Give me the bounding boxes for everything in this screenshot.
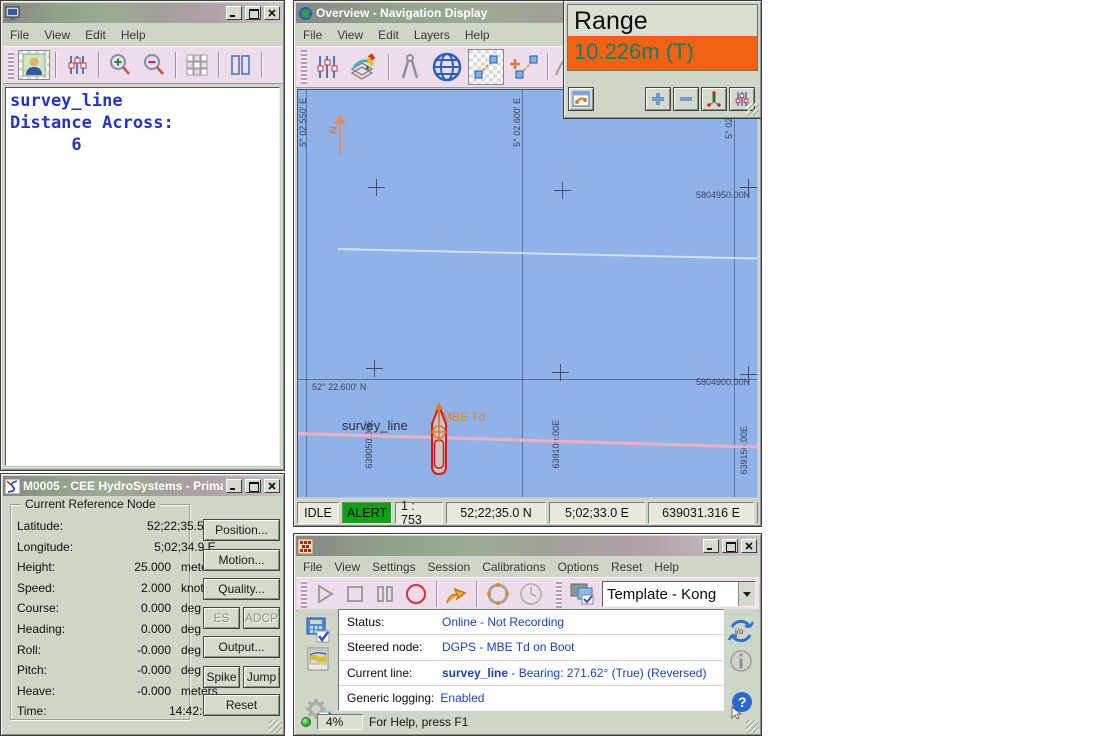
menu-options[interactable]: Options	[558, 560, 599, 574]
jump-button[interactable]: Jump	[243, 666, 280, 688]
text-display-menubar: File View Edit Help	[1, 25, 284, 46]
echogram-view-button[interactable]	[302, 647, 334, 673]
northing-indicator: 5804866.7	[757, 502, 758, 524]
resize-grip[interactable]	[746, 103, 759, 116]
navigation-statusbar: IDLE ALERT 1 : 753 52;22;35.0 N 5;02;33.…	[297, 500, 758, 526]
readout-line-3: 6	[10, 135, 82, 155]
north-label: N	[328, 126, 340, 134]
help-hint-text: For Help, press F1	[369, 715, 468, 729]
northing-label: 5804900.00N	[696, 377, 750, 387]
close-button[interactable]	[264, 6, 280, 20]
readout-line-2: Distance Across:	[10, 113, 174, 133]
row-label: Heading:	[17, 622, 105, 636]
node-measure-button[interactable]	[701, 87, 727, 111]
row-label: Roll:	[17, 643, 105, 657]
maximize-button[interactable]	[245, 479, 261, 493]
text-display-toolbar	[3, 46, 282, 84]
row-label: Height:	[17, 560, 105, 574]
latitude-label: 52° 22.600' N	[312, 382, 366, 392]
resize-grip[interactable]	[746, 720, 759, 733]
row-value: 0.000	[105, 601, 171, 615]
current-line-bearing: - Bearing: 271.62° (True) (Reversed)	[508, 666, 706, 680]
controller-statusbar: 4% For Help, press F1	[297, 712, 758, 732]
toolbar-separator	[175, 52, 176, 78]
toolbar-separator	[436, 581, 437, 607]
position-button[interactable]: Position...	[203, 519, 280, 541]
row-value: Online - Not Recording	[442, 615, 564, 629]
grid-cross	[554, 182, 571, 199]
status-row: Status: Online - Not Recording	[339, 610, 723, 635]
monitor-icon	[5, 6, 20, 20]
row-value: 25.000	[105, 560, 171, 574]
row-label: Pitch:	[17, 663, 105, 677]
grid-cross	[368, 179, 385, 196]
compass-tool-button[interactable]	[394, 52, 426, 82]
north-arrow-icon: N	[328, 108, 352, 158]
close-button[interactable]	[264, 479, 280, 493]
row-label: Latitude:	[17, 519, 105, 533]
easting-indicator: 639031.316 E	[648, 502, 754, 524]
toolbar-separator	[218, 52, 219, 78]
toolbar-separator	[547, 54, 548, 80]
controller-app-icon	[298, 539, 313, 554]
menu-view[interactable]: View	[337, 28, 363, 42]
row-label: Course:	[17, 601, 105, 615]
row-label: Steered node:	[347, 640, 442, 654]
range-window: Range 10.226m (T)	[563, 0, 762, 119]
row-label: Heave:	[17, 684, 105, 698]
mode-indicator: IDLE	[297, 502, 339, 524]
row-label: Status:	[347, 615, 442, 629]
menu-view[interactable]: View	[44, 28, 70, 42]
vessel-icon	[422, 402, 456, 482]
line-add-button[interactable]	[506, 52, 542, 82]
adcp-button[interactable]: ADCP	[243, 607, 280, 629]
scale-indicator: 1 : 753	[395, 502, 443, 524]
link-window-button[interactable]	[568, 87, 594, 111]
longitude-label: 5° 02.600' E	[512, 98, 522, 147]
readout-line-1: survey_line	[10, 91, 123, 111]
distance-readout: survey_line Distance Across: 6	[5, 87, 280, 466]
row-label: Generic logging:	[347, 691, 434, 705]
globe-title-icon	[298, 6, 313, 21]
globe-projection-button[interactable]	[428, 52, 466, 82]
maximize-button[interactable]	[722, 539, 738, 553]
zoom-out-button[interactable]	[138, 50, 170, 80]
northing-label: 5804950.00N	[696, 190, 750, 200]
helm-button[interactable]	[482, 579, 514, 609]
maximize-button[interactable]	[245, 6, 261, 20]
avatar-button[interactable]	[18, 50, 50, 80]
menu-session[interactable]: Session	[428, 560, 471, 574]
controller-status-list: Status: Online - Not Recording Steered n…	[338, 609, 724, 711]
text-display-titlebar[interactable]	[3, 3, 282, 23]
motion-button[interactable]: Motion...	[203, 549, 280, 571]
reference-data-grid: Latitude:52;22;35.5 N Longitude:5;02;34.…	[17, 519, 185, 718]
menu-reset[interactable]: Reset	[611, 560, 642, 574]
play-button[interactable]	[311, 579, 339, 609]
pause-button[interactable]	[371, 579, 399, 609]
hydrosystems-icon	[5, 479, 20, 494]
line-select-button[interactable]	[468, 49, 504, 85]
row-value: DGPS - MBE Td on Boot	[442, 640, 575, 654]
row-value: Enabled	[440, 691, 484, 705]
row-value: -0.000	[105, 684, 171, 698]
longitude-gridline	[734, 90, 735, 497]
row-value: 2.000	[105, 581, 171, 595]
menu-view[interactable]: View	[334, 560, 360, 574]
controller-toolbar: Template - Kong	[296, 577, 759, 611]
svg-text:i/o: i/o	[735, 627, 744, 636]
row-value: 52;22;35.5 N	[105, 519, 218, 533]
menu-layers[interactable]: Layers	[414, 28, 450, 42]
menu-file[interactable]: File	[10, 28, 29, 42]
template-combobox-value: Template - Kong	[603, 586, 738, 603]
menu-calibrations[interactable]: Calibrations	[482, 560, 545, 574]
replay-button[interactable]	[441, 579, 471, 609]
row-value: 5;02;34.9 E	[105, 540, 218, 554]
alert-indicator: ALERT	[342, 502, 392, 524]
resize-grip[interactable]	[269, 720, 282, 733]
info-button[interactable]	[726, 649, 756, 673]
chevron-down-icon[interactable]	[738, 582, 755, 606]
latitude-indicator: 52;22;35.0 N	[446, 502, 546, 524]
close-button[interactable]	[741, 539, 757, 553]
minimize-button[interactable]	[226, 6, 242, 20]
window-title: M0005 - CEE HydroSystems - Prima...	[23, 479, 223, 493]
reset-button[interactable]: Reset	[203, 694, 280, 716]
menu-file[interactable]: File	[303, 28, 322, 42]
stop-button[interactable]	[341, 579, 369, 609]
menu-settings[interactable]: Settings	[372, 560, 415, 574]
chart-line	[338, 248, 758, 260]
output-button[interactable]: Output...	[203, 636, 280, 658]
zoom-in-button[interactable]	[104, 50, 136, 80]
latitude-gridline	[298, 379, 757, 380]
record-button[interactable]	[401, 579, 431, 609]
zoom-in-range-button[interactable]	[645, 87, 671, 111]
toolbar-grip[interactable]	[301, 580, 307, 608]
steered-node-row: Steered node: DGPS - MBE Td on Boot	[339, 635, 723, 660]
display-settings-button[interactable]	[311, 52, 343, 82]
controller-titlebar[interactable]	[296, 536, 759, 556]
row-label: Time:	[17, 704, 105, 718]
longitude-gridline	[522, 90, 523, 497]
sliders-button[interactable]	[61, 50, 93, 80]
io-refresh-button[interactable]: i/o	[726, 617, 756, 645]
quality-button[interactable]: Quality...	[203, 578, 280, 600]
current-line-row: Current line: survey_line - Bearing: 271…	[339, 661, 723, 686]
status-led	[301, 717, 311, 727]
controller-left-panel	[297, 609, 338, 711]
clock-button[interactable]	[516, 579, 546, 609]
minimize-button[interactable]	[226, 479, 242, 493]
toolbar-separator	[55, 52, 56, 78]
controller-menubar: File View Settings Session Calibrations …	[294, 558, 761, 577]
template-combobox[interactable]: Template - Kong	[602, 581, 756, 607]
toolbar-grip[interactable]	[556, 580, 562, 608]
edit-layers-button[interactable]	[345, 52, 383, 82]
map-canvas[interactable]: 5° 02.550' E 5° 02.600' E 5° 02.650' E 5…	[297, 89, 758, 498]
m0005-titlebar[interactable]: M0005 - CEE HydroSystems - Prima...	[3, 476, 282, 496]
grid-cross	[366, 360, 383, 377]
generic-logging-row: Generic logging: Enabled	[339, 686, 723, 710]
zoom-out-range-button[interactable]	[673, 87, 699, 111]
row-value: -0.000	[105, 643, 171, 657]
minimize-button[interactable]	[703, 539, 719, 553]
range-button-row	[568, 86, 755, 112]
row-label: Current line:	[347, 666, 442, 680]
longitude-gridline	[306, 90, 307, 497]
progress-indicator: 4%	[317, 714, 363, 730]
north-arrow-stem	[339, 116, 341, 154]
row-label: Speed:	[17, 581, 105, 595]
current-reference-node-group: Current Reference Node Latitude:52;22;35…	[10, 504, 190, 720]
row-value: survey_line - Bearing: 271.62° (True) (R…	[442, 666, 706, 680]
row-value: -0.000	[105, 663, 171, 677]
range-title: Range	[567, 4, 758, 36]
controller-content: Status: Online - Not Recording Steered n…	[297, 609, 758, 711]
m0005-window: M0005 - CEE HydroSystems - Prima... Curr…	[0, 473, 285, 736]
menu-file[interactable]: File	[303, 560, 322, 574]
menu-help[interactable]: Help	[654, 560, 679, 574]
toolbar-grip[interactable]	[8, 51, 14, 79]
es-button[interactable]: ES	[203, 607, 240, 629]
survey-line-label: survey_line	[342, 418, 408, 433]
easting-label: 639100.00E	[551, 420, 561, 469]
computation-setup-button[interactable]	[302, 617, 334, 643]
menu-edit[interactable]: Edit	[378, 28, 399, 42]
toolbar-grip[interactable]	[301, 50, 307, 84]
menu-help[interactable]: Help	[465, 28, 490, 42]
spike-button[interactable]: Spike	[203, 666, 240, 688]
menu-edit[interactable]: Edit	[85, 28, 106, 42]
text-display-window: File View Edit Help survey_line Distance…	[0, 0, 285, 471]
toolbar-separator	[388, 54, 389, 80]
controller-window: File View Settings Session Calibrations …	[293, 533, 762, 736]
current-line-name: survey_line	[442, 666, 508, 680]
toolbar-separator	[476, 581, 477, 607]
range-value: 10.226m (T)	[567, 36, 758, 71]
row-value: 0.000	[105, 622, 171, 636]
row-label: Longitude:	[17, 540, 105, 554]
menu-help[interactable]: Help	[121, 28, 146, 42]
toolbar-separator	[261, 52, 262, 78]
longitude-label: 5° 02.550' E	[298, 98, 308, 147]
columns-view-button[interactable]	[224, 50, 256, 80]
controller-right-panel: i/o ?	[724, 609, 758, 711]
svg-text:?: ?	[738, 694, 747, 710]
row-value: 14:42:46	[105, 704, 218, 718]
group-title: Current Reference Node	[21, 497, 160, 511]
grid-view-button[interactable]	[181, 50, 213, 80]
toolbar-separator	[98, 52, 99, 78]
grid-cross	[552, 364, 569, 381]
easting-label: 639150.00E	[739, 426, 749, 475]
longitude-indicator: 5;02;33.0 E	[549, 502, 645, 524]
remote-display-button[interactable]	[566, 579, 600, 609]
